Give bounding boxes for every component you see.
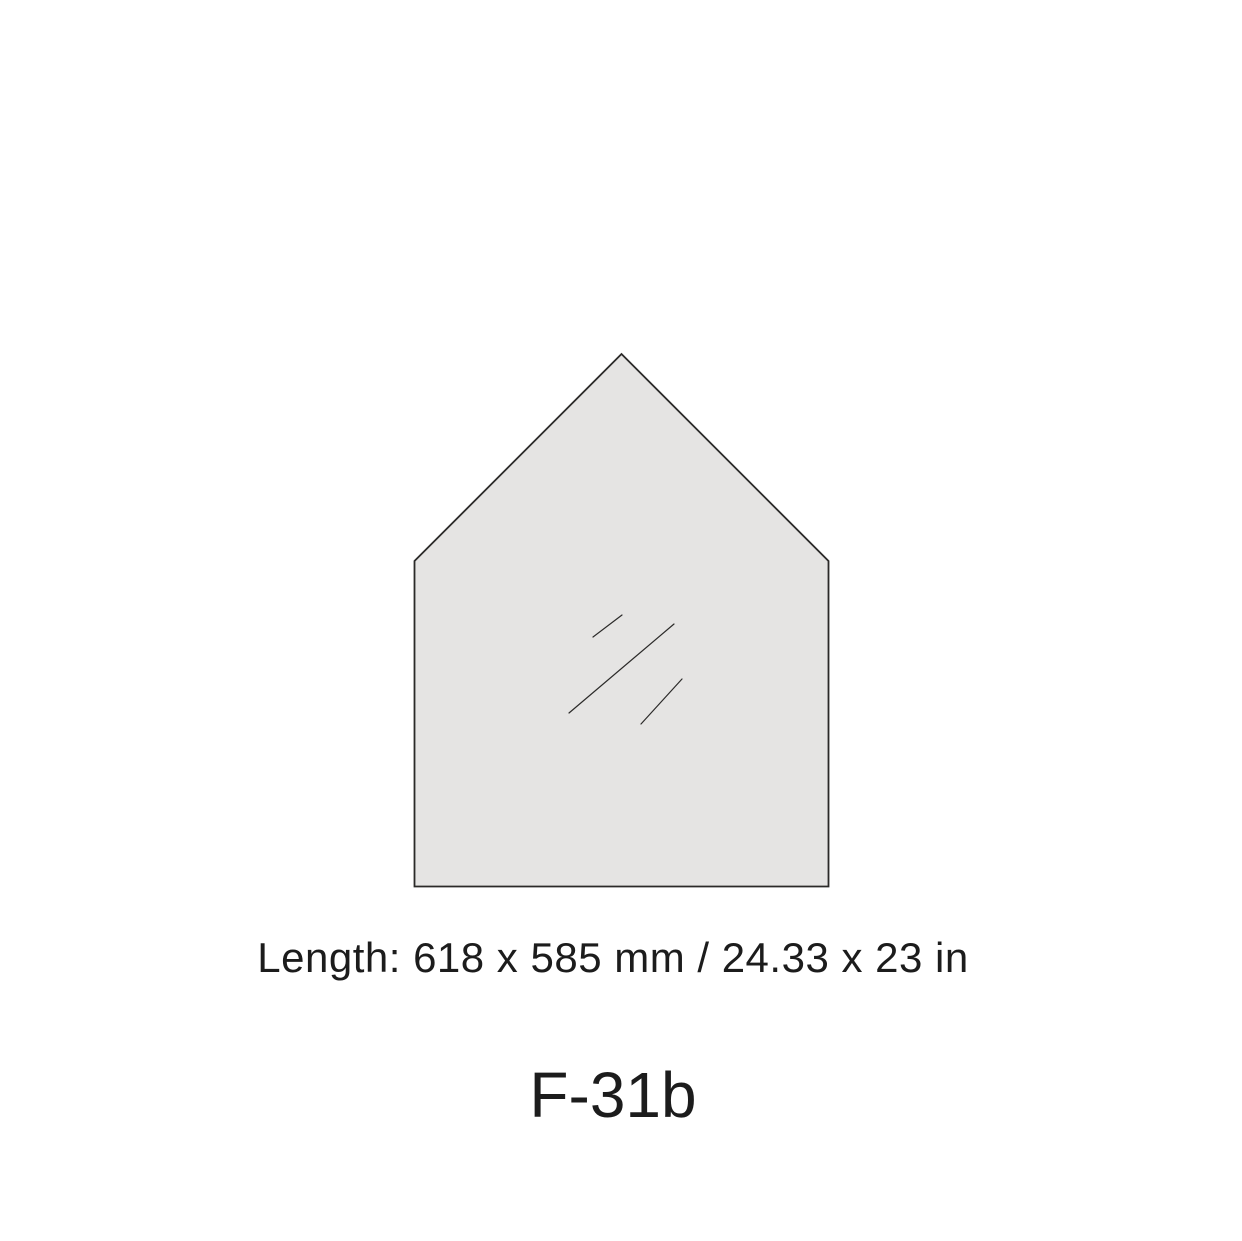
product-diagram-page: Length: 618 x 585 mm / 24.33 x 23 in F-3… [0, 0, 1242, 1241]
part-title: F-31b [0, 1060, 1226, 1130]
dimension-label: Length: 618 x 585 mm / 24.33 x 23 in [0, 933, 1226, 983]
glass-panel-shape [415, 354, 829, 887]
glass-panel-diagram [0, 0, 1242, 1241]
